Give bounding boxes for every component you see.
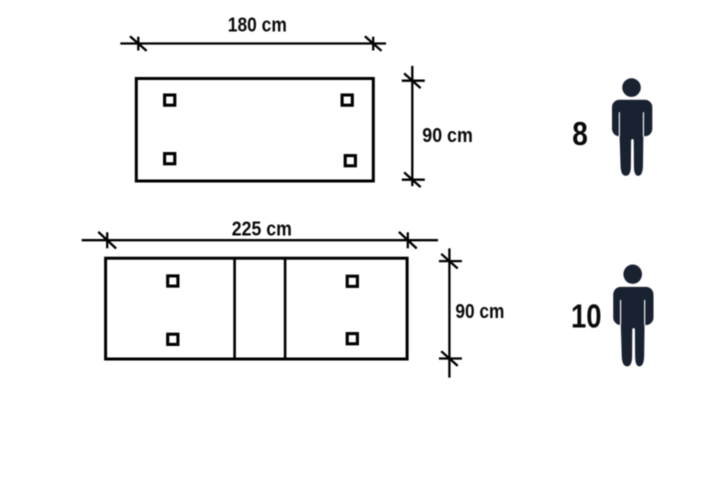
svg-text:225 cm: 225 cm bbox=[232, 218, 292, 241]
svg-text:90 cm: 90 cm bbox=[455, 300, 504, 323]
svg-text:8: 8 bbox=[572, 115, 588, 152]
svg-text:10: 10 bbox=[571, 298, 602, 335]
svg-text:90 cm: 90 cm bbox=[422, 124, 473, 147]
svg-text:180 cm: 180 cm bbox=[228, 14, 287, 37]
